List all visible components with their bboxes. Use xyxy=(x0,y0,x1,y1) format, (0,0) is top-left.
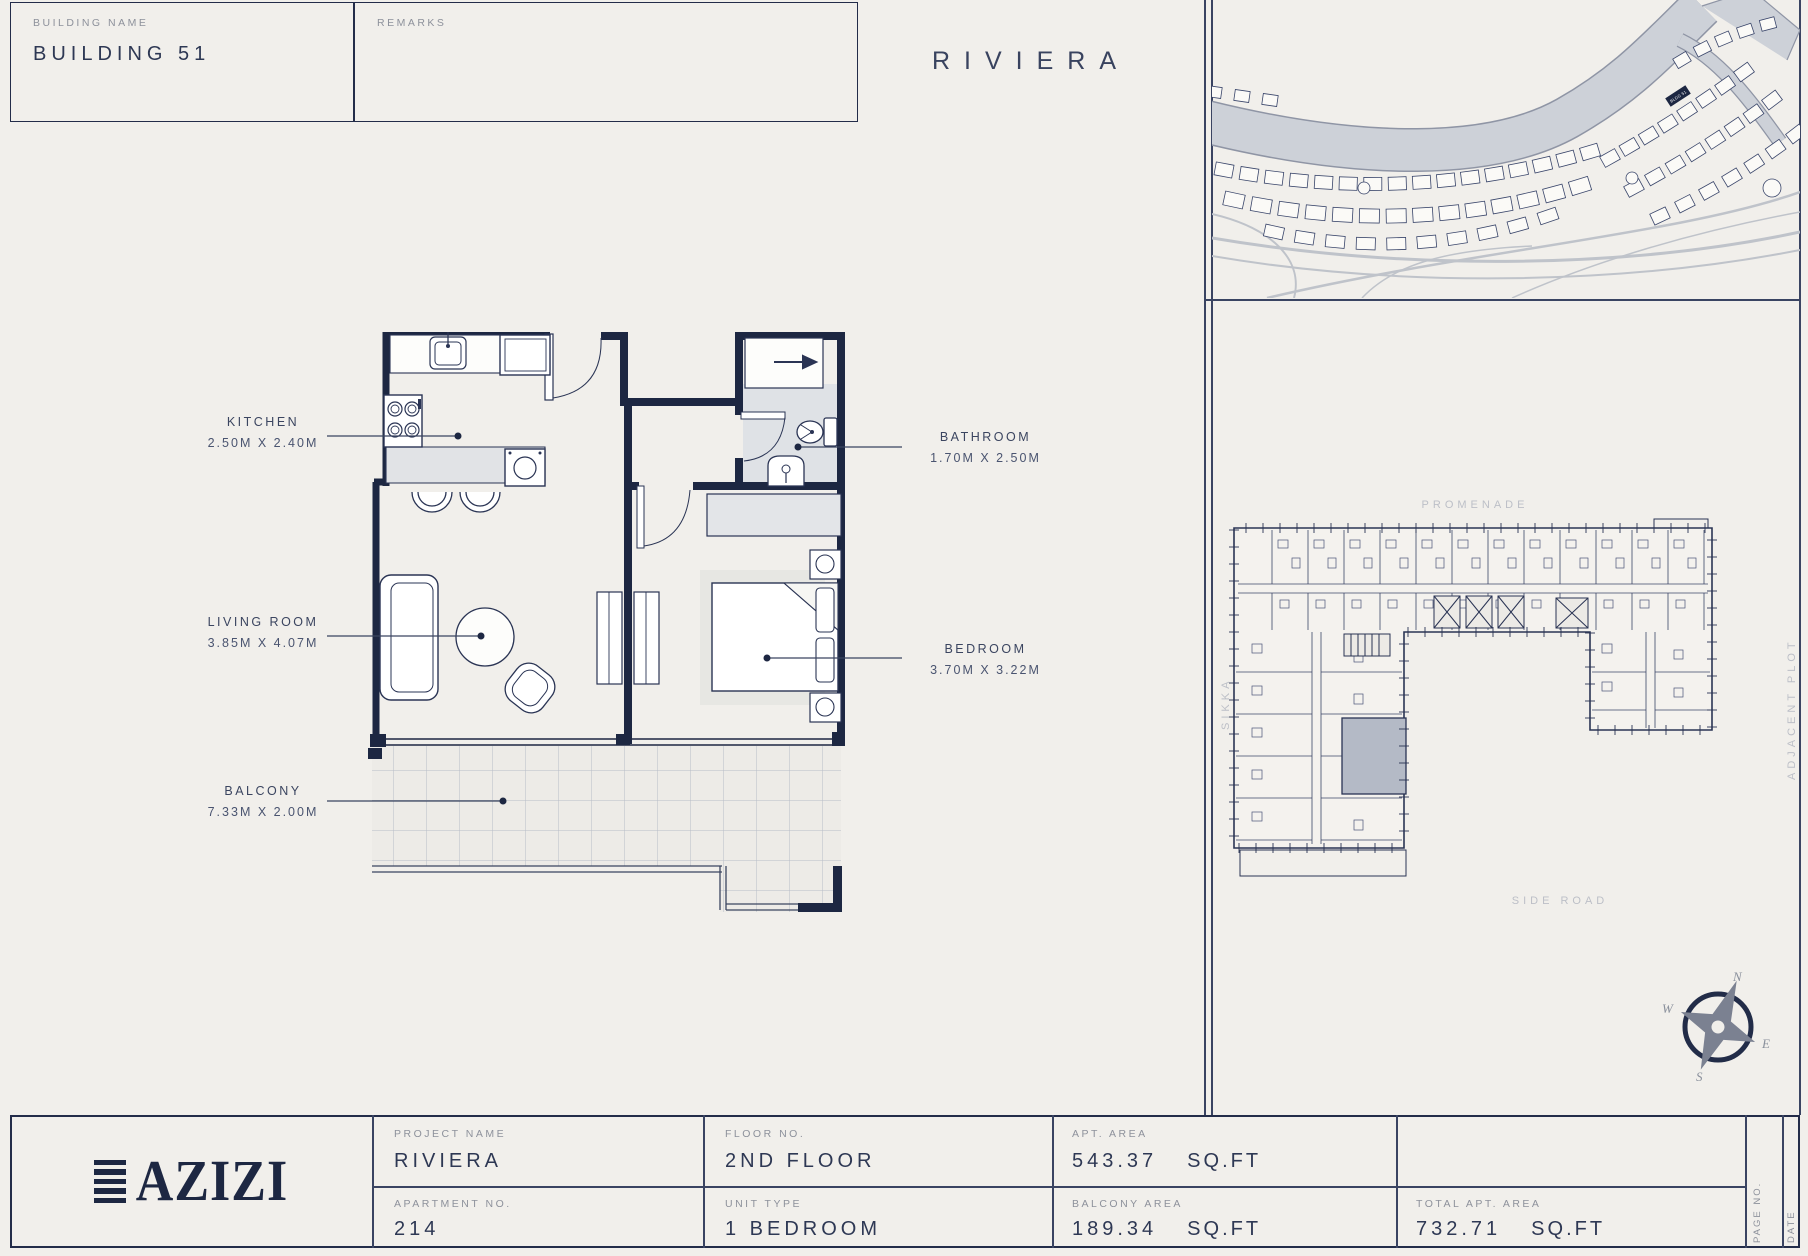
total-apt-area-number: 732.71 xyxy=(1416,1218,1501,1240)
side-road-label: SIDE ROAD xyxy=(1460,895,1660,907)
balcony-dims: 7.33M X 2.00M xyxy=(183,802,343,823)
building-name-label: BUILDING NAME xyxy=(33,17,353,29)
tb-row-divider xyxy=(372,1186,1745,1188)
wardrobe xyxy=(707,494,841,536)
apt-area-unit: SQ.FT xyxy=(1187,1150,1261,1172)
bedroom-door-leaf xyxy=(637,486,644,548)
total-apt-area-value: 732.71SQ.FT xyxy=(1416,1218,1605,1241)
total-apt-area-label: TOTAL APT. AREA xyxy=(1416,1198,1541,1210)
stool-icons xyxy=(412,492,500,512)
azizi-logo-bars-icon xyxy=(94,1160,126,1204)
washer-icon xyxy=(505,449,545,486)
unit-type-value: 1 BEDROOM xyxy=(725,1218,881,1241)
basin-icon xyxy=(768,456,804,486)
date-label: DATE xyxy=(1786,1185,1797,1243)
tb-divider-3 xyxy=(1052,1115,1054,1248)
sofa-icon xyxy=(380,575,438,700)
balcony-glazing xyxy=(372,739,841,745)
balcony-area-number: 189.34 xyxy=(1072,1218,1157,1240)
apt-area-value: 543.37SQ.FT xyxy=(1072,1150,1261,1173)
building-outline xyxy=(1234,528,1712,848)
entry-door-arc xyxy=(553,338,601,398)
compass-n: N xyxy=(1732,969,1743,984)
living-room-dims: 3.85M X 4.07M xyxy=(183,633,343,654)
tb-divider-1 xyxy=(372,1115,374,1248)
bedroom-label: BEDROOM 3.70M X 3.22M xyxy=(903,639,1068,681)
compass-rose: N W E S xyxy=(1612,955,1808,1125)
balcony-name: BALCONY xyxy=(183,781,343,802)
compass-e: E xyxy=(1761,1036,1770,1051)
bathroom-door-leaf xyxy=(741,412,785,419)
apt-area-label: APT. AREA xyxy=(1072,1128,1148,1140)
floor-no-value: 2ND FLOOR xyxy=(725,1150,875,1173)
apartment-no-value: 214 xyxy=(394,1218,439,1241)
floor-no-label: FLOOR NO. xyxy=(725,1128,805,1140)
project-name-value: RIVIERA xyxy=(394,1150,502,1173)
armchair-icon xyxy=(499,657,561,719)
fridge-icon xyxy=(500,335,550,375)
living-room-name: LIVING ROOM xyxy=(183,612,343,633)
terrace-outline xyxy=(1240,850,1406,876)
balcony-area-label: BALCONY AREA xyxy=(1072,1198,1183,1210)
remarks-box: REMARKS xyxy=(354,2,858,122)
total-apt-area-unit: SQ.FT xyxy=(1531,1218,1605,1240)
balcony-label: BALCONY 7.33M X 2.00M xyxy=(183,781,343,823)
building-name-value: BUILDING 51 xyxy=(33,43,210,65)
toilet-icon xyxy=(797,418,837,446)
kitchen-dims: 2.50M X 2.40M xyxy=(183,433,343,454)
bed-icon xyxy=(712,583,838,691)
kitchen-name: KITCHEN xyxy=(183,412,343,433)
bathroom-label: BATHROOM 1.70M X 2.50M xyxy=(903,427,1068,469)
compass-w: W xyxy=(1662,1001,1674,1016)
adjacent-plot-label: ADJACENT PLOT xyxy=(1786,620,1798,780)
azizi-logo-text: AZIZI xyxy=(136,1152,288,1210)
balcony-area-unit: SQ.FT xyxy=(1187,1218,1261,1240)
project-name-label: PROJECT NAME xyxy=(394,1128,506,1140)
bedroom-door-arc xyxy=(644,490,690,546)
highlighted-building-plot: BLDG 51 xyxy=(1665,85,1691,106)
building-name-box: BUILDING NAME BUILDING 51 xyxy=(10,2,354,122)
tb-divider-4 xyxy=(1396,1115,1398,1248)
unit-type-label: UNIT TYPE xyxy=(725,1198,802,1210)
compass-star xyxy=(1664,966,1774,1085)
compass-s: S xyxy=(1696,1069,1703,1084)
sikka-label: SIKKA xyxy=(1220,670,1232,730)
sink-icon xyxy=(430,332,466,369)
bedroom-dims: 3.70M X 3.22M xyxy=(903,660,1068,681)
project-title: RIVIERA xyxy=(858,0,1204,122)
apt-area-number: 543.37 xyxy=(1072,1150,1157,1172)
roof-step xyxy=(1654,519,1708,528)
tb-divider-2 xyxy=(703,1115,705,1248)
living-room-label: LIVING ROOM 3.85M X 4.07M xyxy=(183,612,343,654)
tb-divider-5 xyxy=(1745,1115,1747,1248)
bathroom-name: BATHROOM xyxy=(903,427,1068,448)
remarks-label: REMARKS xyxy=(377,17,857,29)
tb-divider-6 xyxy=(1782,1115,1784,1248)
azizi-logo: AZIZI xyxy=(10,1115,372,1248)
stove-icon xyxy=(384,395,422,447)
bathroom-dims: 1.70M X 2.50M xyxy=(903,448,1068,469)
apartment-no-label: APARTMENT NO. xyxy=(394,1198,512,1210)
page-no-label: PAGE NO. xyxy=(1752,1155,1763,1243)
drawing-sheet: BUILDING NAME BUILDING 51 REMARKS RIVIER… xyxy=(0,0,1808,1256)
highlighted-unit xyxy=(1342,718,1406,794)
site-location-map: BLDG 51 xyxy=(1212,0,1800,298)
balcony-tiles xyxy=(372,746,841,866)
kitchen-label: KITCHEN 2.50M X 2.40M xyxy=(183,412,343,454)
round-table-icon xyxy=(456,608,514,666)
balcony-area-value: 189.34SQ.FT xyxy=(1072,1218,1261,1241)
main-road xyxy=(1212,6,1702,150)
bedroom-name: BEDROOM xyxy=(903,639,1068,660)
promenade-label: PROMENADE xyxy=(1330,499,1620,511)
